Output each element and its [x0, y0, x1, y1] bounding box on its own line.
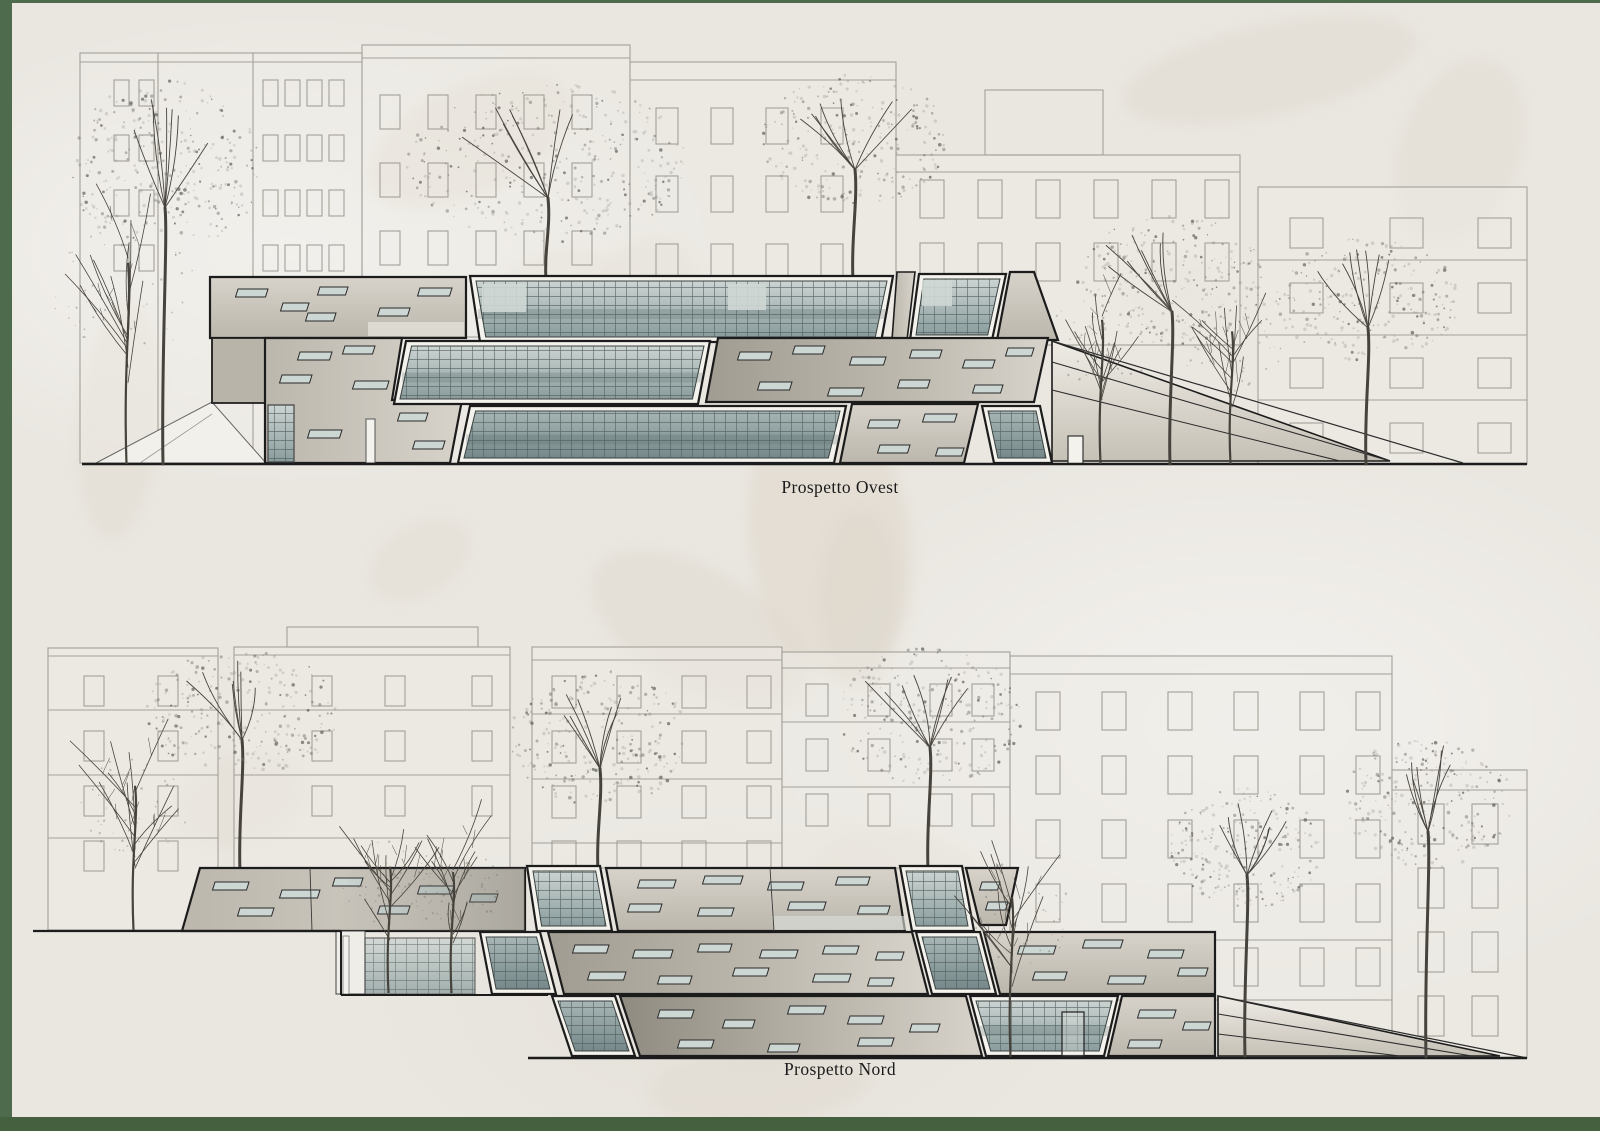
elevation-nord-label: Prospetto Nord: [670, 1059, 1010, 1080]
elevations-drawing: [0, 0, 1600, 1131]
elevation-west: [55, 45, 1527, 464]
board-frame-top: [0, 0, 1600, 3]
board-frame-bottom: [0, 1117, 1600, 1131]
board-frame-left: [0, 0, 12, 1131]
elevation-nord: [33, 627, 1527, 1058]
elevation-west-label: Prospetto Ovest: [670, 477, 1010, 498]
presentation-board: Prospetto Ovest Prospetto Nord: [0, 0, 1600, 1131]
